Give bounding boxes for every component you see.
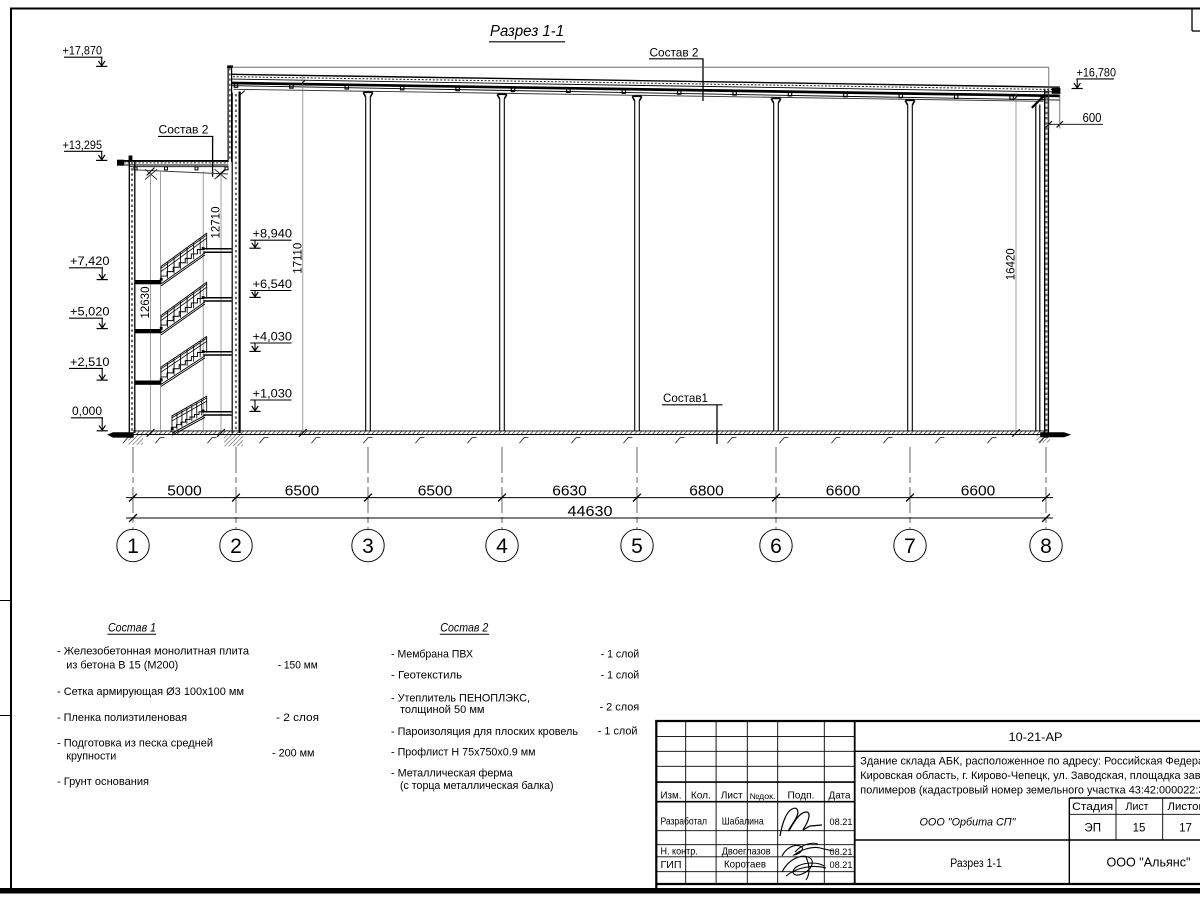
svg-text:- Пароизоляция для плоских кро: - Пароизоляция для плоских кровель [391,726,578,738]
svg-text:600: 600 [1083,111,1102,125]
svg-text:1: 1 [127,535,139,558]
svg-text:- Геотекстиль: - Геотекстиль [391,669,462,681]
svg-text:+8,940: +8,940 [253,227,293,241]
svg-text:44630: 44630 [568,504,613,520]
svg-text:+17,870: +17,870 [63,43,103,57]
svg-text:Шабалина: Шабалина [722,815,764,827]
svg-text:Коротаев: Коротаев [724,859,766,870]
svg-text:Кировская область, г. Кирово-Ч: Кировская область, г. Кирово-Чепецк, ул.… [860,770,1200,782]
svg-text:3: 3 [362,535,374,558]
svg-text:+7,420: +7,420 [70,254,110,268]
svg-text:10-21-АР: 10-21-АР [1009,730,1063,744]
svg-text:2: 2 [230,535,242,558]
svg-text:из бетона В 15 (М200): из бетона В 15 (М200) [66,659,178,671]
svg-text:12630: 12630 [140,287,152,319]
svg-text:5: 5 [631,535,643,558]
svg-text:- 1 слой: - 1 слой [598,725,638,737]
svg-text:- Мембрана ПВХ: - Мембрана ПВХ [391,648,474,660]
svg-text:Разработал: Разработал [661,815,708,827]
svg-text:полимеров (кадастровый номер з: полимеров (кадастровый номер земельного … [860,784,1200,796]
svg-text:- Сетка армирующая Ø3 100x100: - Сетка армирующая Ø3 100x100 мм [57,686,244,698]
svg-text:Разрез 1-1: Разрез 1-1 [950,858,1002,870]
svg-text:Двоеглазов: Двоеглазов [722,846,771,857]
svg-text:- 2 слоя: - 2 слоя [276,712,319,724]
svg-text:08.21: 08.21 [830,817,853,828]
svg-text:+13,295: +13,295 [63,138,103,152]
svg-text:Н. контр.: Н. контр. [661,846,698,857]
svg-text:+5,020: +5,020 [70,305,110,319]
svg-text:ООО "Альянс": ООО "Альянс" [1107,856,1191,870]
svg-text:6500: 6500 [418,483,453,499]
svg-text:+6,540: +6,540 [253,277,293,291]
svg-text:толщиной 50 мм: толщиной 50 мм [400,704,485,716]
svg-text:Разрез 1-1: Разрез 1-1 [490,23,564,40]
svg-text:0,000: 0,000 [72,404,102,418]
svg-text:12710: 12710 [211,207,223,239]
svg-text:- 2 слоя: - 2 слоя [600,701,640,713]
svg-text:+4,030: +4,030 [253,329,293,343]
svg-text:- Грунт основания: - Грунт основания [57,776,149,788]
svg-text:№док.: №док. [750,792,776,801]
svg-text:Здание склада АБК, расположенн: Здание склада АБК, расположенное по адре… [860,755,1200,767]
svg-text:Листов: Листов [1168,801,1200,813]
svg-text:4: 4 [496,535,508,558]
svg-text:Лист: Лист [1126,801,1149,813]
svg-text:Состав 2: Состав 2 [440,622,488,635]
svg-text:(с торца металлическая балка): (с торца металлическая балка) [400,780,554,792]
svg-text:6: 6 [770,535,782,558]
svg-text:Состав 2: Состав 2 [650,45,699,59]
svg-text:+1,030: +1,030 [253,386,293,400]
svg-text:Дата: Дата [829,790,851,801]
svg-text:ЭП: ЭП [1084,822,1101,834]
svg-text:- 200 мм: - 200 мм [272,748,315,760]
svg-text:15: 15 [1133,822,1146,834]
svg-text:17110: 17110 [292,243,304,274]
svg-text:Стадия: Стадия [1072,801,1113,813]
svg-text:ГИП: ГИП [661,860,682,871]
svg-text:17: 17 [1179,822,1192,834]
svg-text:Состав1: Состав1 [663,391,708,405]
svg-text:+16,780: +16,780 [1077,65,1117,79]
svg-text:Состав 1: Состав 1 [108,622,156,635]
svg-text:- Пленка полиэтиленовая: - Пленка полиэтиленовая [57,712,187,724]
svg-text:8: 8 [1040,535,1052,558]
svg-text:+2,510: +2,510 [70,355,110,369]
svg-text:- 1 слой: - 1 слой [601,648,640,660]
svg-text:6630: 6630 [552,483,587,499]
svg-text:- Подготовка из песка средней: - Подготовка из песка средней [57,738,213,750]
svg-text:6500: 6500 [285,483,320,499]
svg-text:крупности: крупности [66,751,116,763]
svg-text:Подп.: Подп. [788,790,815,801]
svg-text:- Профлист Н 75х750х0.9 мм: - Профлист Н 75х750х0.9 мм [391,746,536,758]
svg-text:08.21: 08.21 [830,860,853,871]
svg-text:16420: 16420 [1006,248,1018,280]
svg-text:ООО "Орбита СП": ООО "Орбита СП" [920,816,1017,828]
svg-text:08.21: 08.21 [830,847,853,858]
svg-text:5000: 5000 [167,483,202,499]
svg-text:6600: 6600 [961,483,996,499]
svg-text:7: 7 [904,535,916,558]
svg-text:Лист: Лист [721,790,743,801]
svg-text:6800: 6800 [689,483,724,499]
svg-text:- 150 мм: - 150 мм [278,659,318,671]
svg-text:6600: 6600 [826,483,861,499]
svg-text:Изм.: Изм. [661,790,682,801]
svg-text:Состав 2: Состав 2 [159,123,209,137]
svg-text:Кол.: Кол. [691,790,711,801]
svg-text:- Металлическая ферма: - Металлическая ферма [391,768,514,780]
svg-text:- 1 слой: - 1 слой [601,669,640,681]
svg-text:- Утеплитель ПЕНОПЛЭКС,: - Утеплитель ПЕНОПЛЭКС, [391,693,530,705]
svg-text:- Железобетонная монолитная п: - Железобетонная монолитная плита [57,646,250,658]
